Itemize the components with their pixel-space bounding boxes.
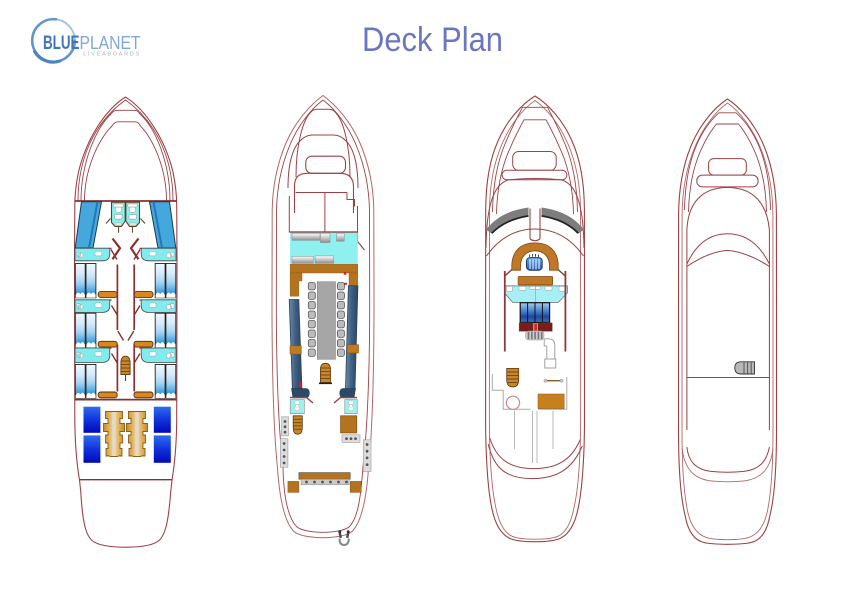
svg-text:BLUE: BLUE xyxy=(43,33,80,54)
svg-text:PLANET: PLANET xyxy=(80,32,141,53)
svg-text:Deck Plan: Deck Plan xyxy=(362,21,503,59)
